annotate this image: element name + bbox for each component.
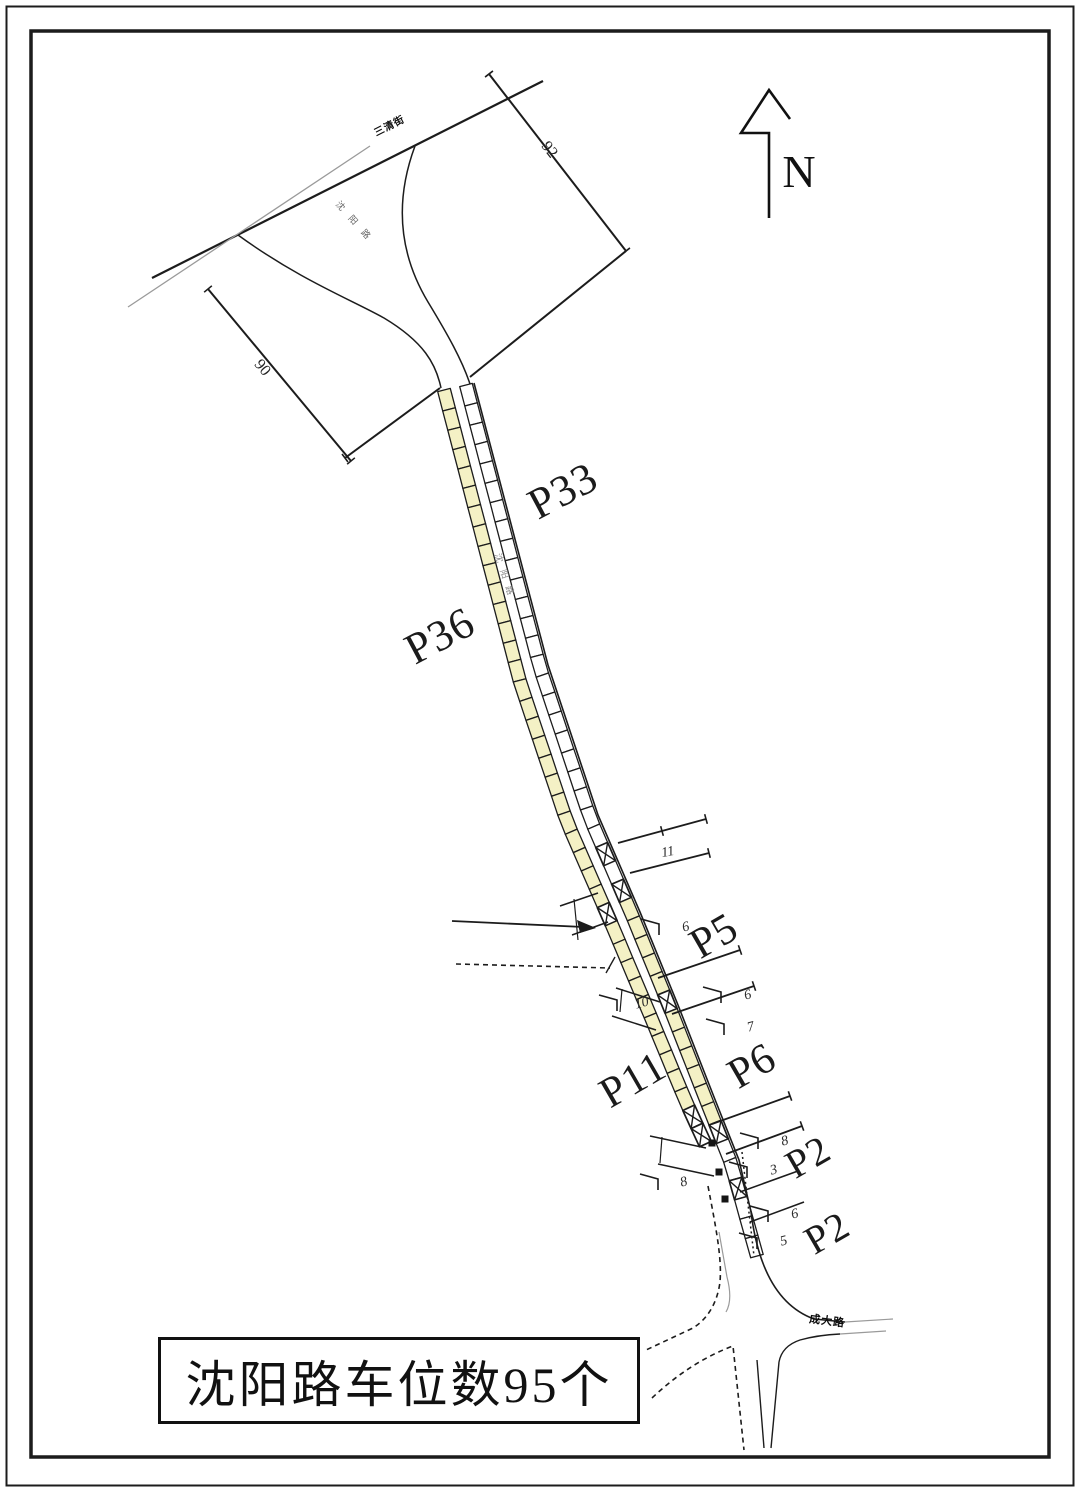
title-text: 沈阳路车位数95个 <box>186 1345 613 1417</box>
bottom-intersection <box>646 1186 893 1450</box>
parcel-boundary <box>204 71 630 464</box>
callout-11: 11 <box>660 845 675 861</box>
parking-row-east <box>460 383 764 1257</box>
site-plan-page: N 92 90 三清街 沈阳路 沈阳路 成大路 P33 P36 P5 P6 P1… <box>0 0 1080 1492</box>
north-label: N <box>782 149 815 195</box>
site-plan-svg <box>0 0 1080 1492</box>
top-intersection <box>128 81 543 388</box>
title-box: 沈阳路车位数95个 <box>158 1337 640 1424</box>
